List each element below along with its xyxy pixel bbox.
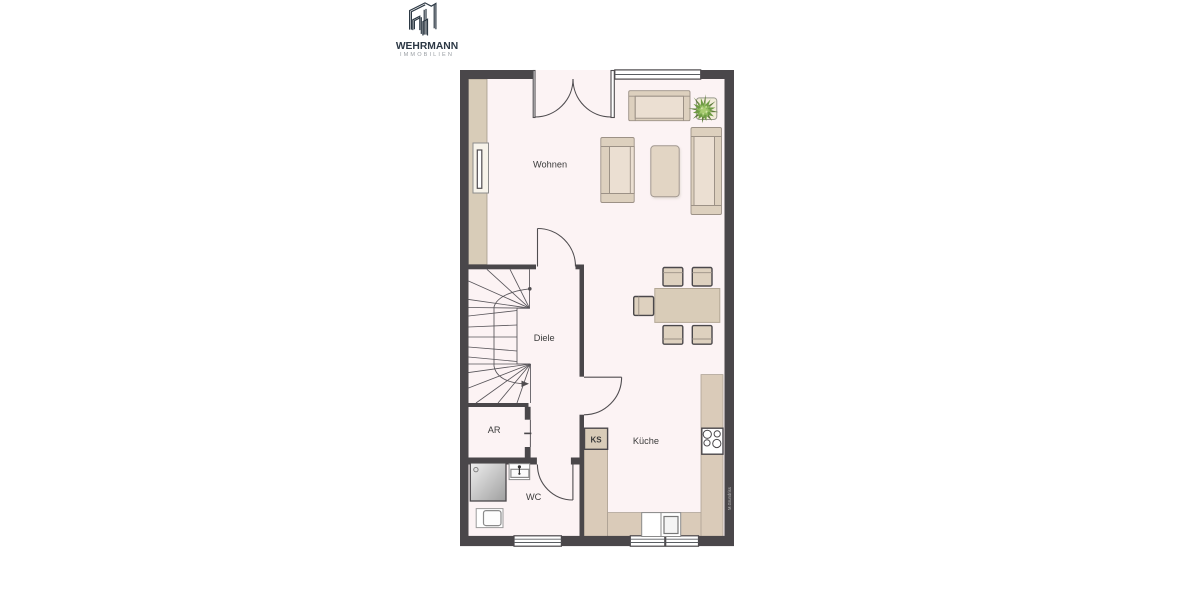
svg-text:Küche: Küche [633,436,659,446]
svg-text:WC: WC [526,492,542,502]
svg-text:AR: AR [488,425,501,435]
svg-text:WEHRMANN: WEHRMANN [396,41,458,52]
svg-text:IMMOBILIEN: IMMOBILIEN [400,52,454,58]
svg-text:Wohnen: Wohnen [533,159,567,169]
svg-text:Diele: Diele [534,333,555,343]
svg-text:M.Grundriss: M.Grundriss [727,487,732,510]
svg-text:KS: KS [591,435,603,444]
